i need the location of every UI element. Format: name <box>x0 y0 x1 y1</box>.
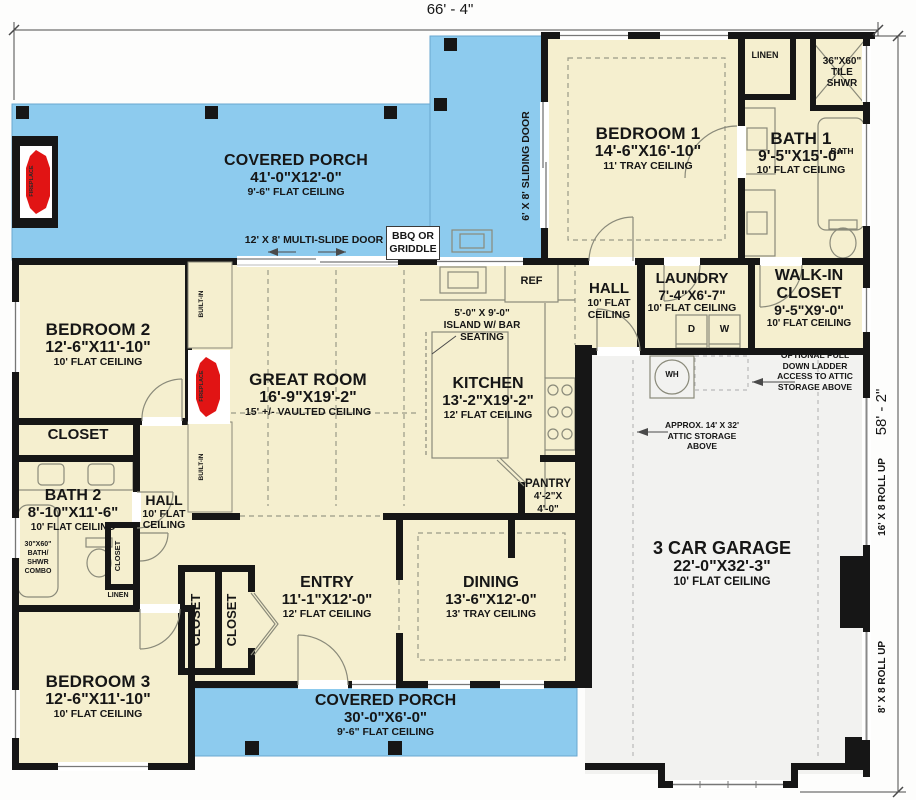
fireplace-label-great-room: FIREPLACE <box>199 353 213 419</box>
room-label-hall-top: HALL 10' FLAT CEILING <box>579 281 639 321</box>
room-label-walk-in-closet: WALK-IN CLOSET 9'-5"X9'-0" 10' FLAT CEIL… <box>748 267 870 330</box>
dimension-width: 66' - 4" <box>380 2 520 19</box>
room-label-covered-porch-top: COVERED PORCH 41'-0"X12'-0" 9'-6" FLAT C… <box>196 152 396 198</box>
sliding-door-label: 6' X 8' SLIDING DOOR <box>521 101 541 231</box>
room-label-laundry: LAUNDRY 7'-4"X6'-7" 10' FLAT CEILING <box>634 271 750 315</box>
room-label-pantry: PANTRY 4'-2"X 4'-0" <box>520 477 576 516</box>
built-in-label-upper: BUILT-IN <box>198 274 216 334</box>
attic-storage-note: APPROX. 14' X 32'ATTIC STORAGEABOVE <box>652 420 752 452</box>
dryer-label: D <box>676 324 707 335</box>
built-in-label-lower: BUILT-IN <box>198 437 216 497</box>
bbq-griddle-label: BBQ ORGRIDDLE <box>386 226 440 260</box>
tile-shower-label: 36"X60"TILESHWR <box>816 56 868 90</box>
room-label-dining: DINING 13'-6"X12'-0" 13' TRAY CEILING <box>412 574 570 620</box>
room-label-great-room: GREAT ROOM 16'-9"X19'-2" 15' +/- VAULTED… <box>218 370 398 419</box>
washer-label: W <box>709 324 740 335</box>
closet-label-bedroom2: CLOSET <box>28 427 128 444</box>
bath-shower-combo-label: 30"X60"BATH/ SHWRCOMBO <box>18 540 58 576</box>
room-label-bedroom3: BEDROOM 3 12'-6"X11'-10" 10' FLAT CEILIN… <box>18 672 178 721</box>
closet-label-entry-2: CLOSET <box>225 570 245 670</box>
water-heater-label: WH <box>657 371 687 380</box>
room-label-entry: ENTRY 11'-1"X12'-0" 12' FLAT CEILING <box>248 574 406 620</box>
linen-label-small: LINEN <box>98 592 138 600</box>
linen-label-top: LINEN <box>740 50 790 60</box>
fireplace-label-porch: FIREPLACE <box>29 146 43 216</box>
bath-tub-label: BATH <box>822 147 862 157</box>
attic-ladder-note: OPTIONAL PULLDOWN LADDER ACCESS TO ATTIC… <box>762 350 868 393</box>
room-label-hall-left: HALL 10' FLAT CEILING <box>133 493 195 532</box>
roll-up-door-16-label: 16' X 8 ROLL UP <box>877 437 895 557</box>
floor-plan: 66' - 4" 58' - 2" COVERED PORCH 41'-0"X1… <box>0 0 916 800</box>
multi-slide-door-label: 12' X 8' MULTI-SLIDE DOOR <box>240 235 388 247</box>
room-label-bedroom2: BEDROOM 2 12'-6"X11'-10" 10' FLAT CEILIN… <box>18 320 178 369</box>
roll-up-door-8-label: 8' X 8 ROLL UP <box>877 617 895 737</box>
refrigerator-label: REF <box>505 275 558 287</box>
room-label-garage: 3 CAR GARAGE 22'-0"X32'-3" 10' FLAT CEIL… <box>632 538 812 589</box>
island-callout: 5'-0" X 9'-0"ISLAND W/ BARSEATING <box>428 308 536 344</box>
room-label-covered-porch-bottom: COVERED PORCH 30'-0"X6'-0" 9'-6" FLAT CE… <box>283 692 488 738</box>
room-label-kitchen: KITCHEN 13'-2"X19'-2" 12' FLAT CEILING <box>418 375 558 421</box>
closet-label-entry-1: CLOSET <box>189 570 209 670</box>
room-label-bedroom1: BEDROOM 1 14'-6"X16'-10" 11' TRAY CEILIN… <box>568 124 728 173</box>
closet-label-hall: CLOSET <box>114 526 130 586</box>
